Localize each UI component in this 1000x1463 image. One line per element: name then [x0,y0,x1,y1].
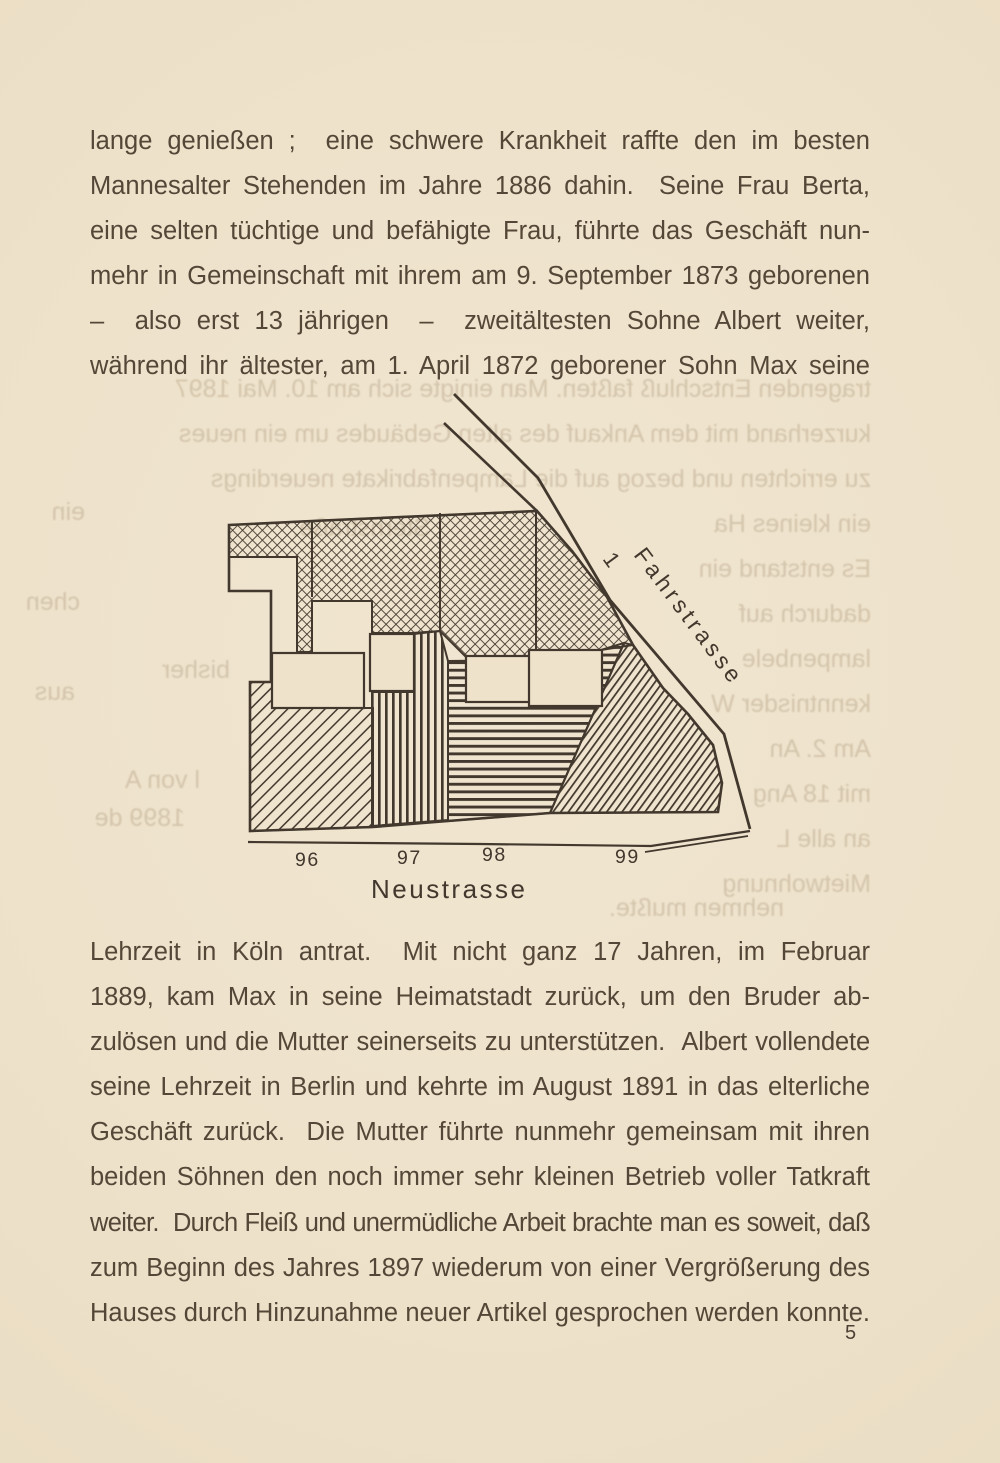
svg-text:97: 97 [397,847,422,869]
svg-text:ein: ein [52,498,85,526]
svg-text:kurzerhand mit dem Ankauf des: kurzerhand mit dem Ankauf des alten Gebä… [179,420,871,448]
svg-text:Es entstand ein: Es entstand ein [699,555,871,583]
svg-text:99: 99 [615,846,640,868]
svg-text:lampenbele: lampenbele [742,645,871,673]
svg-text:an alle L: an alle L [776,825,871,853]
svg-text:Neustrasse: Neustrasse [371,874,528,904]
svg-text:tragenden Entschluß faßten. Ma: tragenden Entschluß faßten. Man einigte … [175,375,871,403]
svg-text:Am 2. An: Am 2. An [770,735,871,763]
svg-text:nehmen mußte.: nehmen mußte. [609,894,784,922]
svg-text:kenntnisder W: kenntnisder W [711,690,871,718]
svg-text:98: 98 [482,844,507,866]
svg-text:mit 18 Ang: mit 18 Ang [753,780,871,808]
svg-text:ein kleines Ha: ein kleines Ha [714,510,871,538]
svg-text:96: 96 [295,849,320,871]
svg-text:1: 1 [598,547,625,572]
svg-text:dadurch auf: dadurch auf [739,600,871,628]
svg-text:zu errichten und bezog auf die: zu errichten und bezog auf die Lampenfab… [211,465,871,493]
svg-text:l von A: l von A [125,766,200,794]
svg-text:1899 de: 1899 de [95,804,185,832]
svg-text:bisher: bisher [162,656,230,684]
svg-text:chen: chen [26,588,80,616]
svg-text:aus: aus [35,678,75,706]
